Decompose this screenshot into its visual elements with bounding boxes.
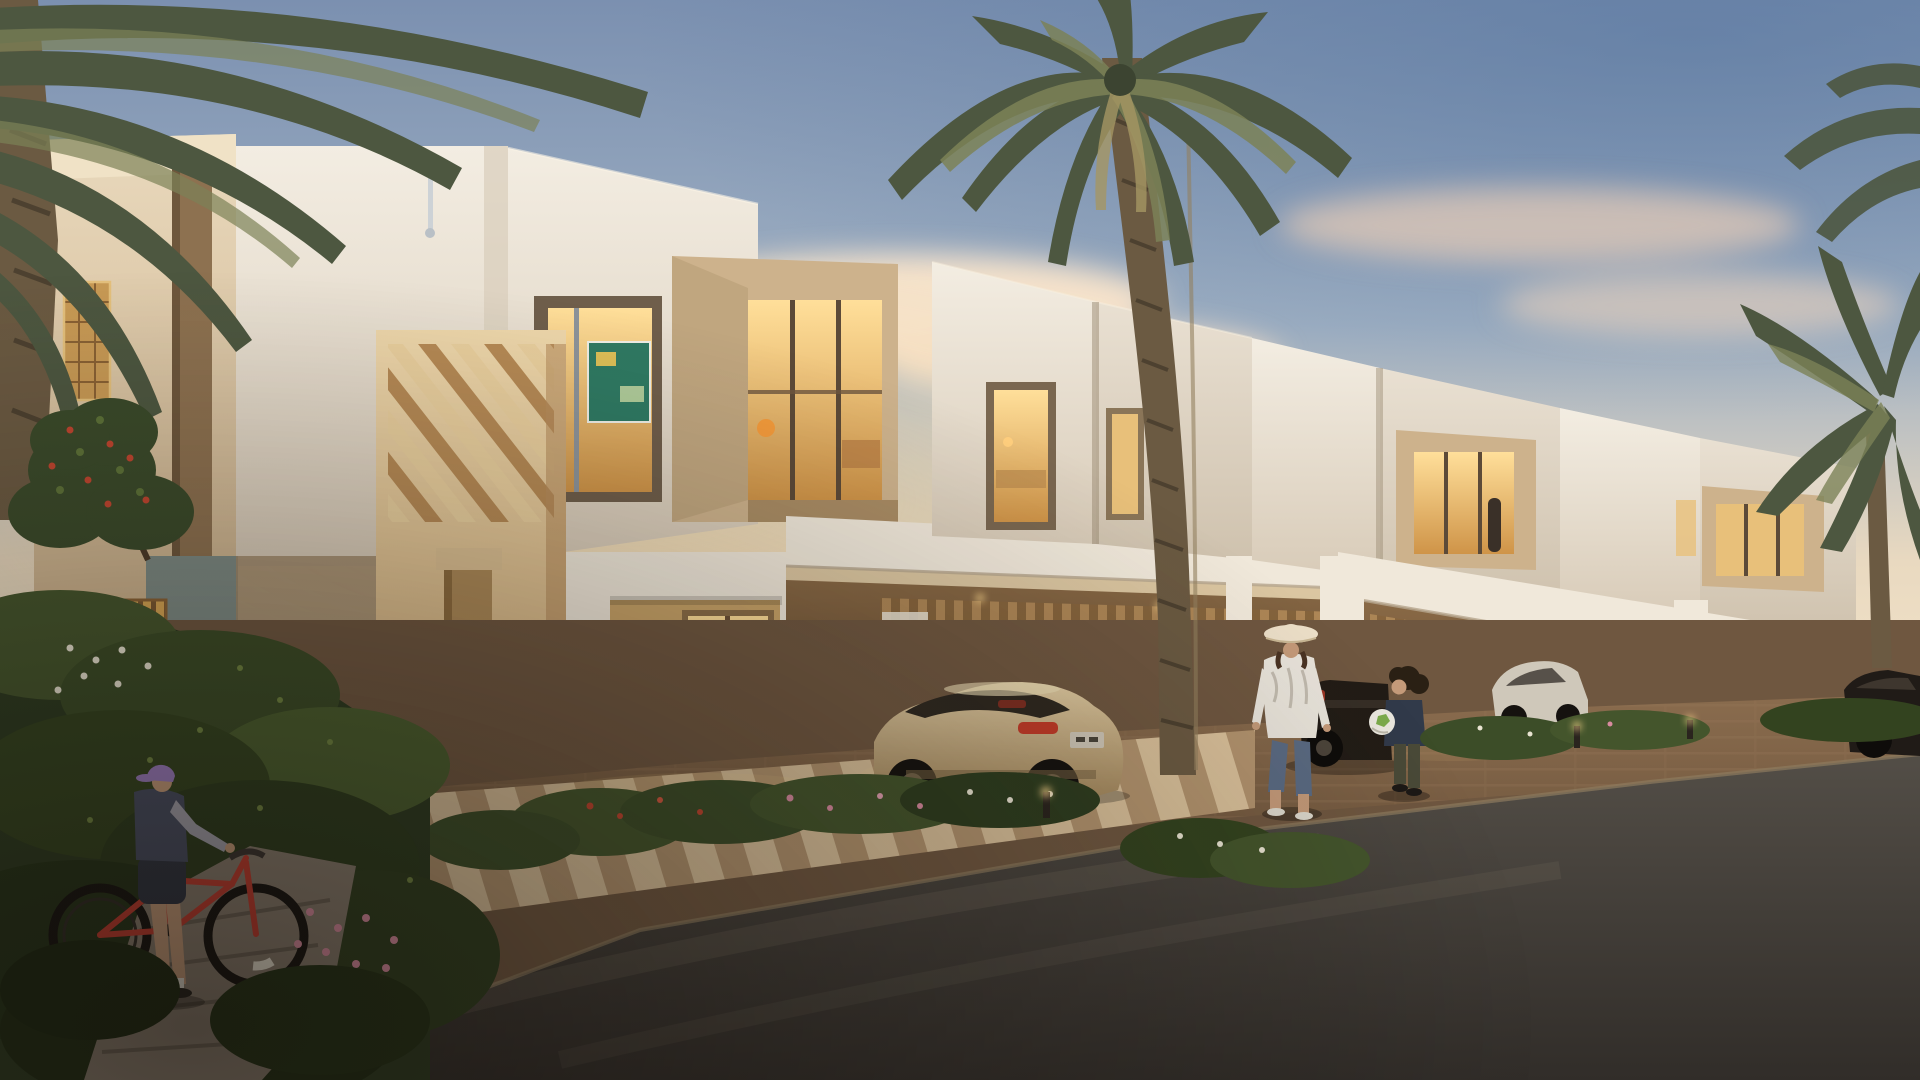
rendered-photo [0, 0, 1920, 1080]
scene-canvas [0, 0, 1920, 1080]
vignette [0, 0, 1920, 1080]
